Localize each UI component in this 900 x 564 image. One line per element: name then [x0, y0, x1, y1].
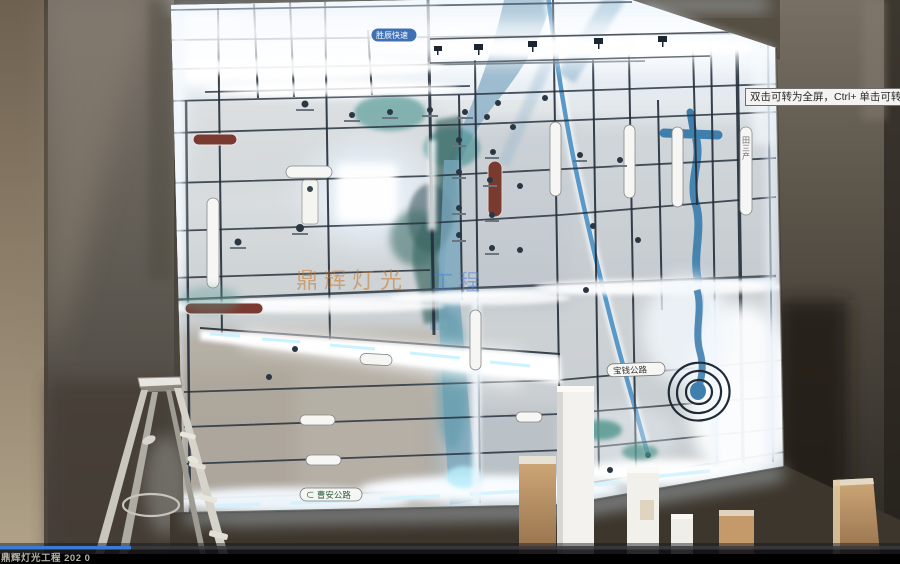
- svg-text:宝钱公路: 宝钱公路: [613, 365, 648, 376]
- svg-text:⊂ 曹安公路: ⊂ 曹安公路: [306, 490, 351, 500]
- svg-text:鼎辉灯光: 鼎辉灯光: [296, 268, 408, 293]
- svg-text:工程: 工程: [432, 270, 484, 295]
- svg-text:胜辰快速: 胜辰快速: [376, 30, 408, 40]
- svg-text:田三产: 田三产: [742, 136, 751, 161]
